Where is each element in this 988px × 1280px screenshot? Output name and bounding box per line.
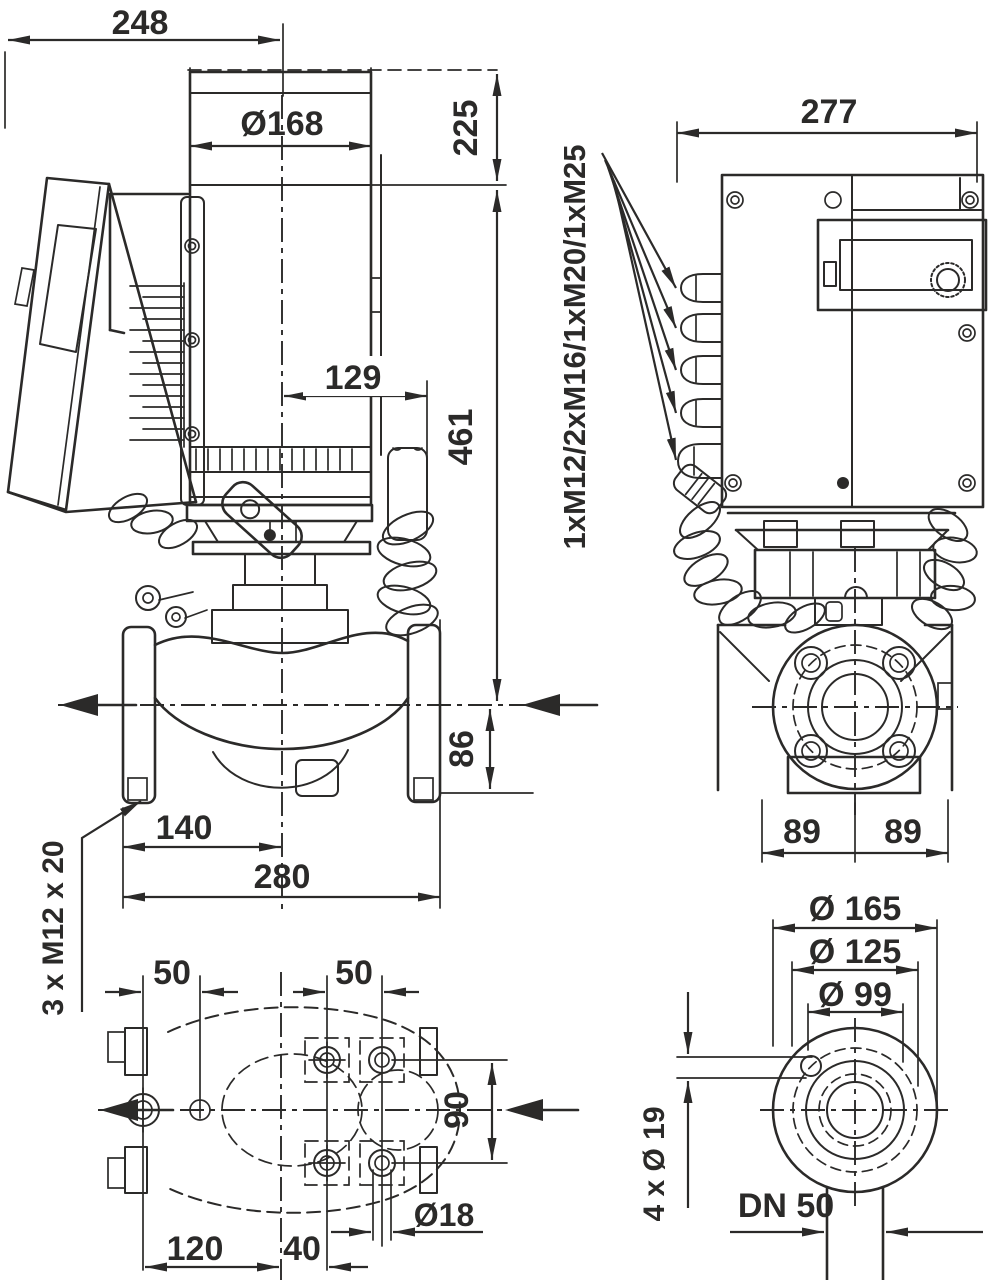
dim-129: 129	[325, 359, 382, 397]
dim-248: 248	[112, 4, 169, 42]
note-cable-glands: 1xM12/2xM16/1xM20/1xM25	[557, 145, 592, 550]
dim-89-left: 89	[783, 813, 821, 851]
dim-flange-od: Ø 165	[809, 890, 902, 928]
dim-89-right: 89	[884, 813, 922, 851]
dim-90: 90	[438, 1091, 476, 1129]
dim-fin-diameter: Ø168	[240, 105, 323, 143]
dim-86: 86	[443, 730, 481, 768]
dim-hole-18: Ø18	[414, 1197, 474, 1233]
dim-bolt-circle: Ø 125	[809, 933, 902, 971]
technical-drawing-page: 248 Ø168 225 461 129 86 140 280 3 x M12 …	[0, 0, 988, 1280]
dim-225: 225	[447, 100, 485, 157]
dim-140: 140	[156, 809, 213, 847]
dim-raised-face: Ø 99	[818, 976, 892, 1014]
dim-280: 280	[254, 858, 311, 896]
dim-277: 277	[801, 93, 858, 131]
dim-120: 120	[167, 1230, 224, 1268]
front-view	[670, 175, 986, 815]
note-foot-thread: 3 x M12 x 20	[37, 840, 70, 1015]
dim-40: 40	[283, 1230, 321, 1268]
pump-dimensional-drawing: 248 Ø168 225 461 129 86 140 280 3 x M12 …	[0, 0, 988, 1280]
note-flange-holes: 4 x Ø 19	[638, 1106, 671, 1221]
dim-50-left: 50	[153, 954, 191, 992]
dim-nominal-bore: DN 50	[738, 1187, 834, 1225]
dim-461: 461	[442, 409, 480, 466]
side-view	[8, 72, 597, 915]
dim-50-right: 50	[335, 954, 373, 992]
